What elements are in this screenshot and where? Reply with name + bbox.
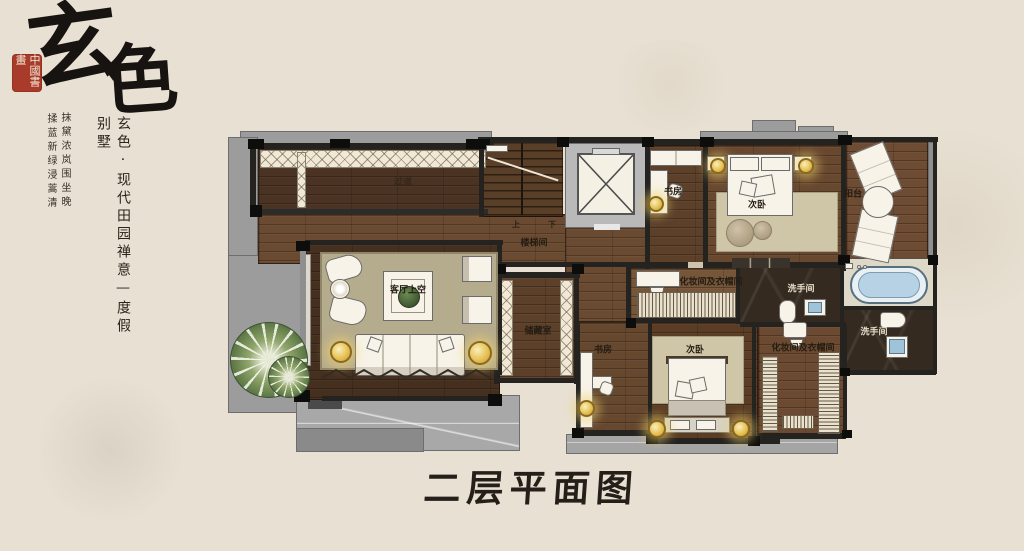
wall-column	[248, 139, 264, 149]
wall-segment	[494, 378, 580, 383]
bed-bottom-foot-blanket	[668, 400, 726, 416]
wall-column	[250, 205, 262, 217]
bathtub-basin	[858, 272, 920, 298]
wall-column	[700, 137, 714, 147]
wall-segment	[322, 396, 500, 401]
wall-segment	[933, 258, 937, 374]
elevator-car	[577, 153, 635, 215]
wall-segment	[841, 141, 846, 271]
page: 玄 色 中國書畫 玄色·现代田园禅意—度假别墅 抹黛浓岚围坐晚 揉蓝新绿浸蒿清	[0, 0, 1024, 551]
floor-lamp-bedroom-left	[648, 420, 666, 438]
console-zigzag	[322, 368, 494, 380]
wall-segment	[752, 322, 756, 438]
wall-segment	[256, 209, 488, 214]
pouf-small	[753, 221, 772, 240]
wardrobe-right	[818, 352, 840, 434]
storage-cabinet-right	[560, 280, 573, 376]
wall-segment	[630, 318, 740, 323]
balcony-table	[862, 186, 894, 218]
bath-hook-1	[857, 265, 861, 269]
artist-seal: 中國書畫	[12, 54, 42, 92]
pouf-large	[726, 219, 754, 247]
elevator-x-mark	[579, 155, 633, 213]
stair-down-mark: 下	[548, 219, 556, 230]
wall-segment	[576, 430, 652, 436]
console-drawer-2	[696, 420, 716, 430]
stair-up-mark: 上	[512, 219, 520, 230]
plan-title: 二层平面图	[422, 458, 641, 512]
room-label-washroom-right: 洗手间	[860, 325, 887, 338]
wall-column	[330, 139, 350, 148]
dressing-bottom-vanity	[783, 322, 807, 338]
stair-door	[486, 145, 508, 152]
wall-column	[488, 394, 502, 406]
wardrobe-left	[762, 356, 778, 432]
poem-line-left: 揉蓝新绿浸蒿清	[43, 113, 58, 253]
wall-column	[842, 430, 852, 438]
side-table-flower	[330, 279, 350, 299]
room-label-study-top: 书房	[664, 185, 682, 198]
wall-column	[642, 137, 654, 147]
armchair-right-2	[462, 296, 492, 324]
wall-column	[572, 264, 584, 274]
wall-segment	[843, 370, 936, 375]
wall-segment	[933, 139, 937, 271]
bath-hook-2	[863, 265, 867, 269]
wall-segment	[843, 306, 936, 310]
clothes-rack	[637, 292, 736, 318]
wall-column	[557, 137, 569, 147]
bed-top-pillow-2	[761, 157, 790, 171]
room-label-study-bottom: 书房	[594, 343, 612, 356]
watercolor-smudge	[600, 40, 740, 130]
room-label-balcony: 阳台	[844, 187, 862, 200]
bed-top-pillow-1	[730, 157, 759, 171]
tagline-vertical: 玄色·现代田园禅意—度假别墅	[93, 116, 133, 346]
room-label-storage: 储藏室	[524, 324, 551, 337]
closet-run-top	[260, 150, 486, 168]
room-label-dressing-top: 化妆间及衣帽间	[679, 275, 742, 288]
console-drawer-1	[670, 420, 690, 430]
armchair-right-1	[462, 256, 492, 282]
seal-text: 中國書畫	[13, 54, 41, 92]
ceiling-lamp-study-top	[648, 196, 664, 212]
wall-segment	[840, 137, 938, 142]
elevator-counterweight	[592, 148, 620, 155]
dressing-top-vanity	[636, 271, 680, 287]
floor-lamp-living-left	[330, 341, 352, 363]
bedside-lamp-right	[798, 158, 814, 174]
wall-segment	[479, 141, 484, 217]
wall-segment	[494, 272, 580, 278]
room-label-bedroom-bottom: 次卧	[686, 343, 704, 356]
study-top-cabinet	[650, 150, 702, 166]
wall-column	[626, 318, 636, 328]
wall-column	[296, 241, 310, 251]
poem-line-right: 抹黛浓岚围坐晚	[57, 112, 72, 252]
exterior-steps-lower	[296, 428, 424, 452]
wall-column	[838, 135, 852, 145]
wall-segment	[843, 325, 847, 435]
wall-segment	[645, 139, 845, 145]
wall-column	[748, 436, 760, 446]
room-label-corridor-upper: 过道	[394, 175, 412, 188]
floor-lamp-living-right	[468, 341, 492, 365]
sink-right-basin	[889, 339, 905, 354]
room-label-dressing-bottom: 化妆间及衣帽间	[771, 341, 834, 354]
room-label-washroom-mid: 洗手间	[787, 282, 814, 295]
wall-column	[572, 428, 584, 438]
elevator-door-gap	[594, 224, 620, 230]
bed-top-throw-2	[739, 180, 758, 197]
bath-fixture	[845, 263, 853, 269]
toilet-mid	[779, 300, 796, 324]
wall-column	[928, 255, 938, 265]
bedside-lamp-left	[710, 158, 726, 174]
plant-small	[268, 356, 310, 398]
sink-mid-basin	[808, 302, 822, 313]
wardrobe-shelf	[782, 415, 814, 429]
room-label-stairwell: 楼梯间	[520, 236, 547, 249]
floor-lamp-bedroom-right	[732, 420, 750, 438]
wall-segment	[488, 262, 638, 267]
wall-segment	[250, 143, 494, 149]
watercolor-smudge	[30, 380, 190, 520]
ceiling-lamp-study-bottom	[578, 400, 595, 417]
window-left-upper	[297, 152, 306, 208]
room-label-living-void: 客厅上空	[390, 283, 426, 296]
wall-segment	[626, 262, 631, 324]
calligraphy-title-char2: 色	[99, 39, 180, 120]
stair-divider	[521, 143, 523, 215]
room-label-bedroom-top: 次卧	[748, 198, 766, 211]
wall-segment	[305, 240, 503, 245]
tv-console-top-bedroom	[732, 258, 790, 268]
